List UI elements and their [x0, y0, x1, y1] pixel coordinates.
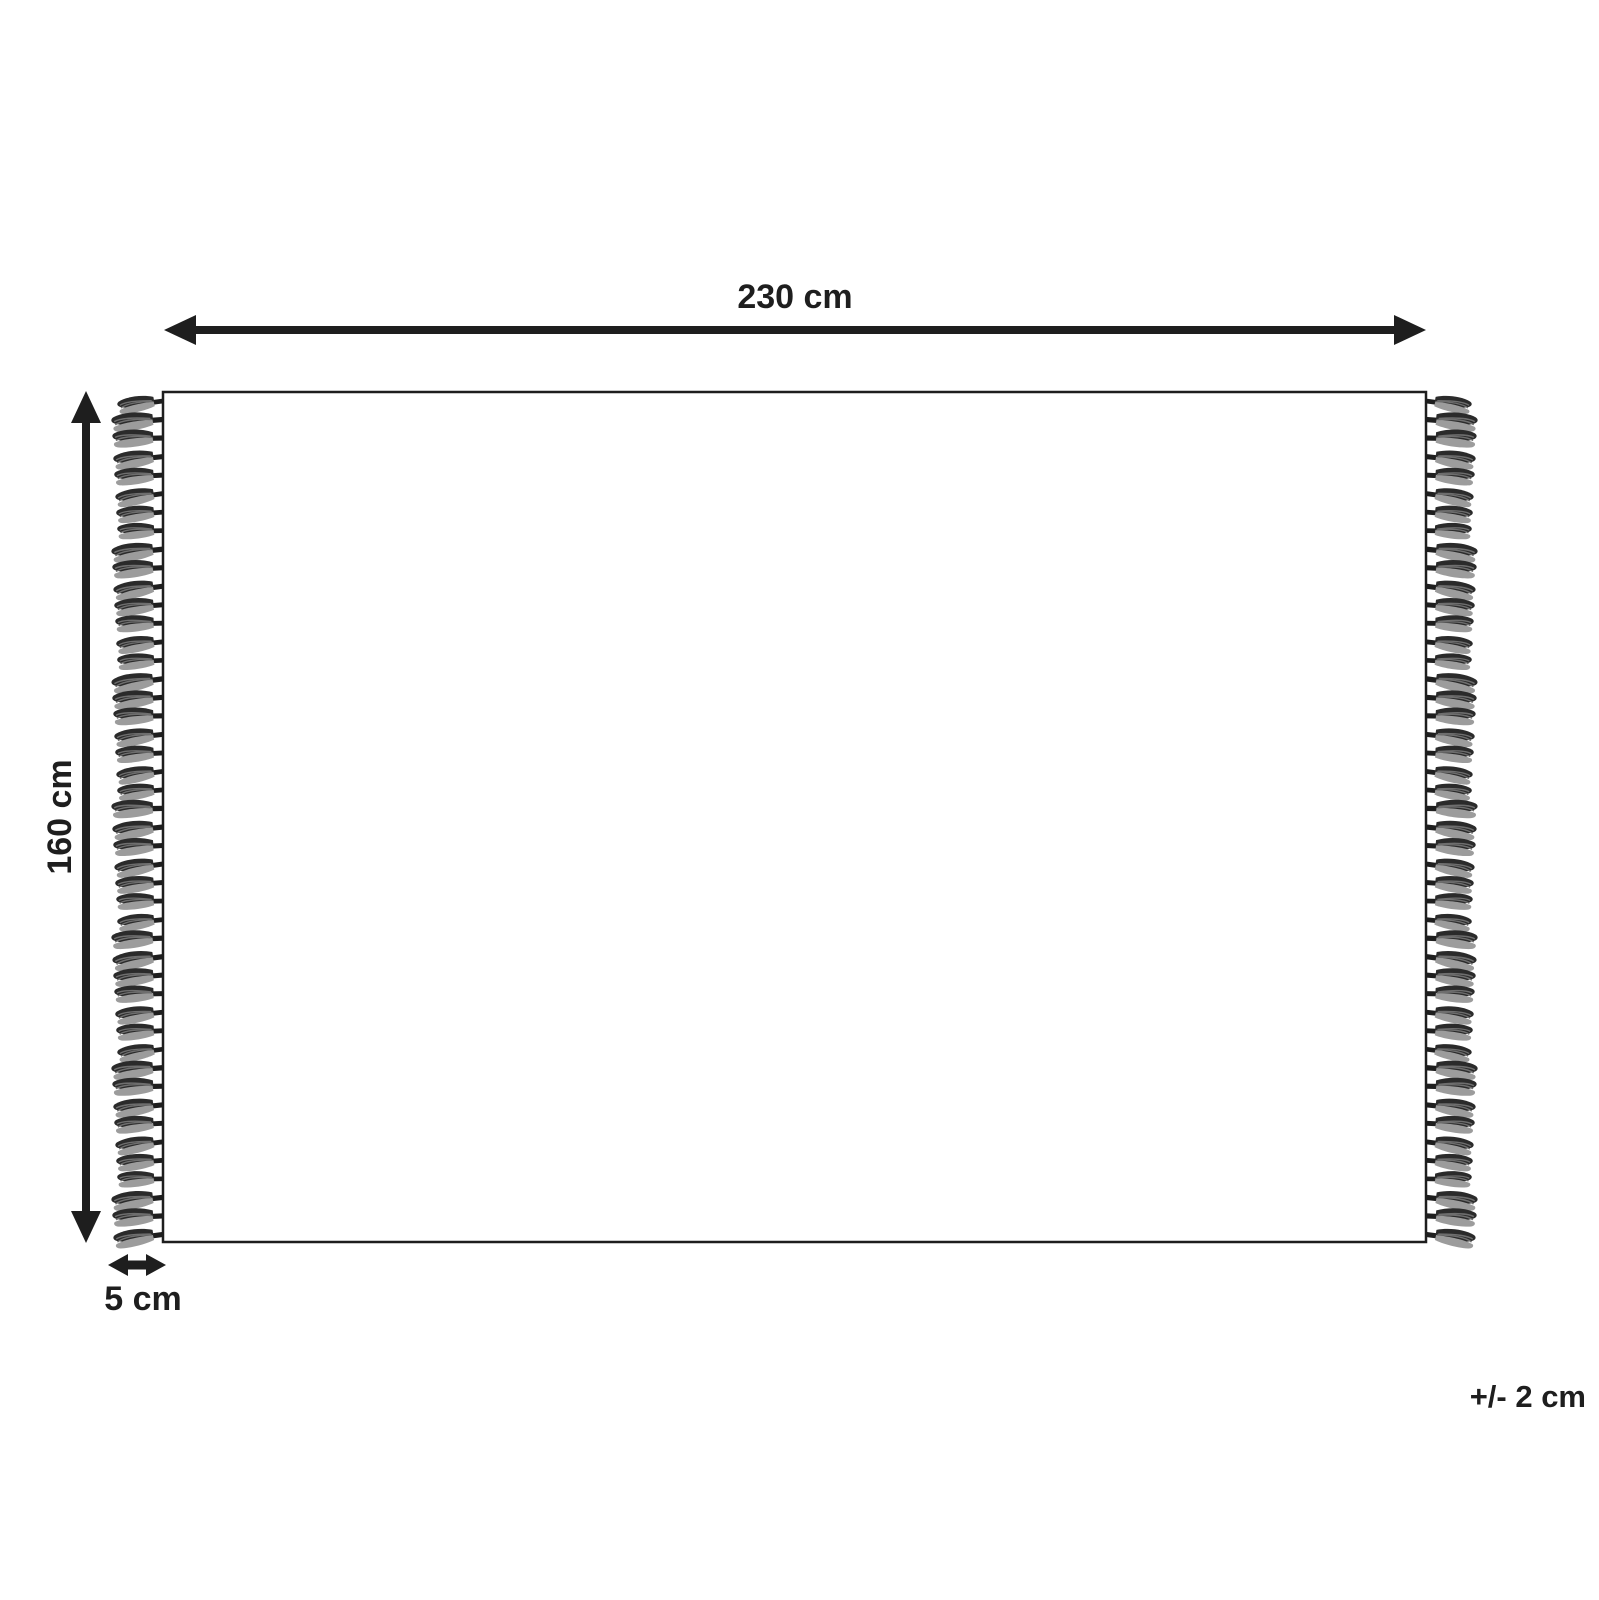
- fringe-dimension-arrow: [108, 1254, 166, 1276]
- fringe-right: [1425, 395, 1478, 1249]
- diagram-graphics: [0, 0, 1599, 1600]
- fringe-dimension-label: 5 cm: [104, 1282, 182, 1316]
- height-dimension-label: 160 cm: [43, 759, 77, 874]
- fringe-left: [111, 395, 164, 1249]
- tolerance-label: +/- 2 cm: [1470, 1381, 1586, 1412]
- width-dimension-arrow: [164, 315, 1426, 345]
- width-dimension-label: 230 cm: [737, 280, 852, 314]
- rug-outline: [163, 392, 1426, 1242]
- rug-dimension-diagram: 230 cm 160 cm 5 cm +/- 2 cm: [0, 0, 1599, 1600]
